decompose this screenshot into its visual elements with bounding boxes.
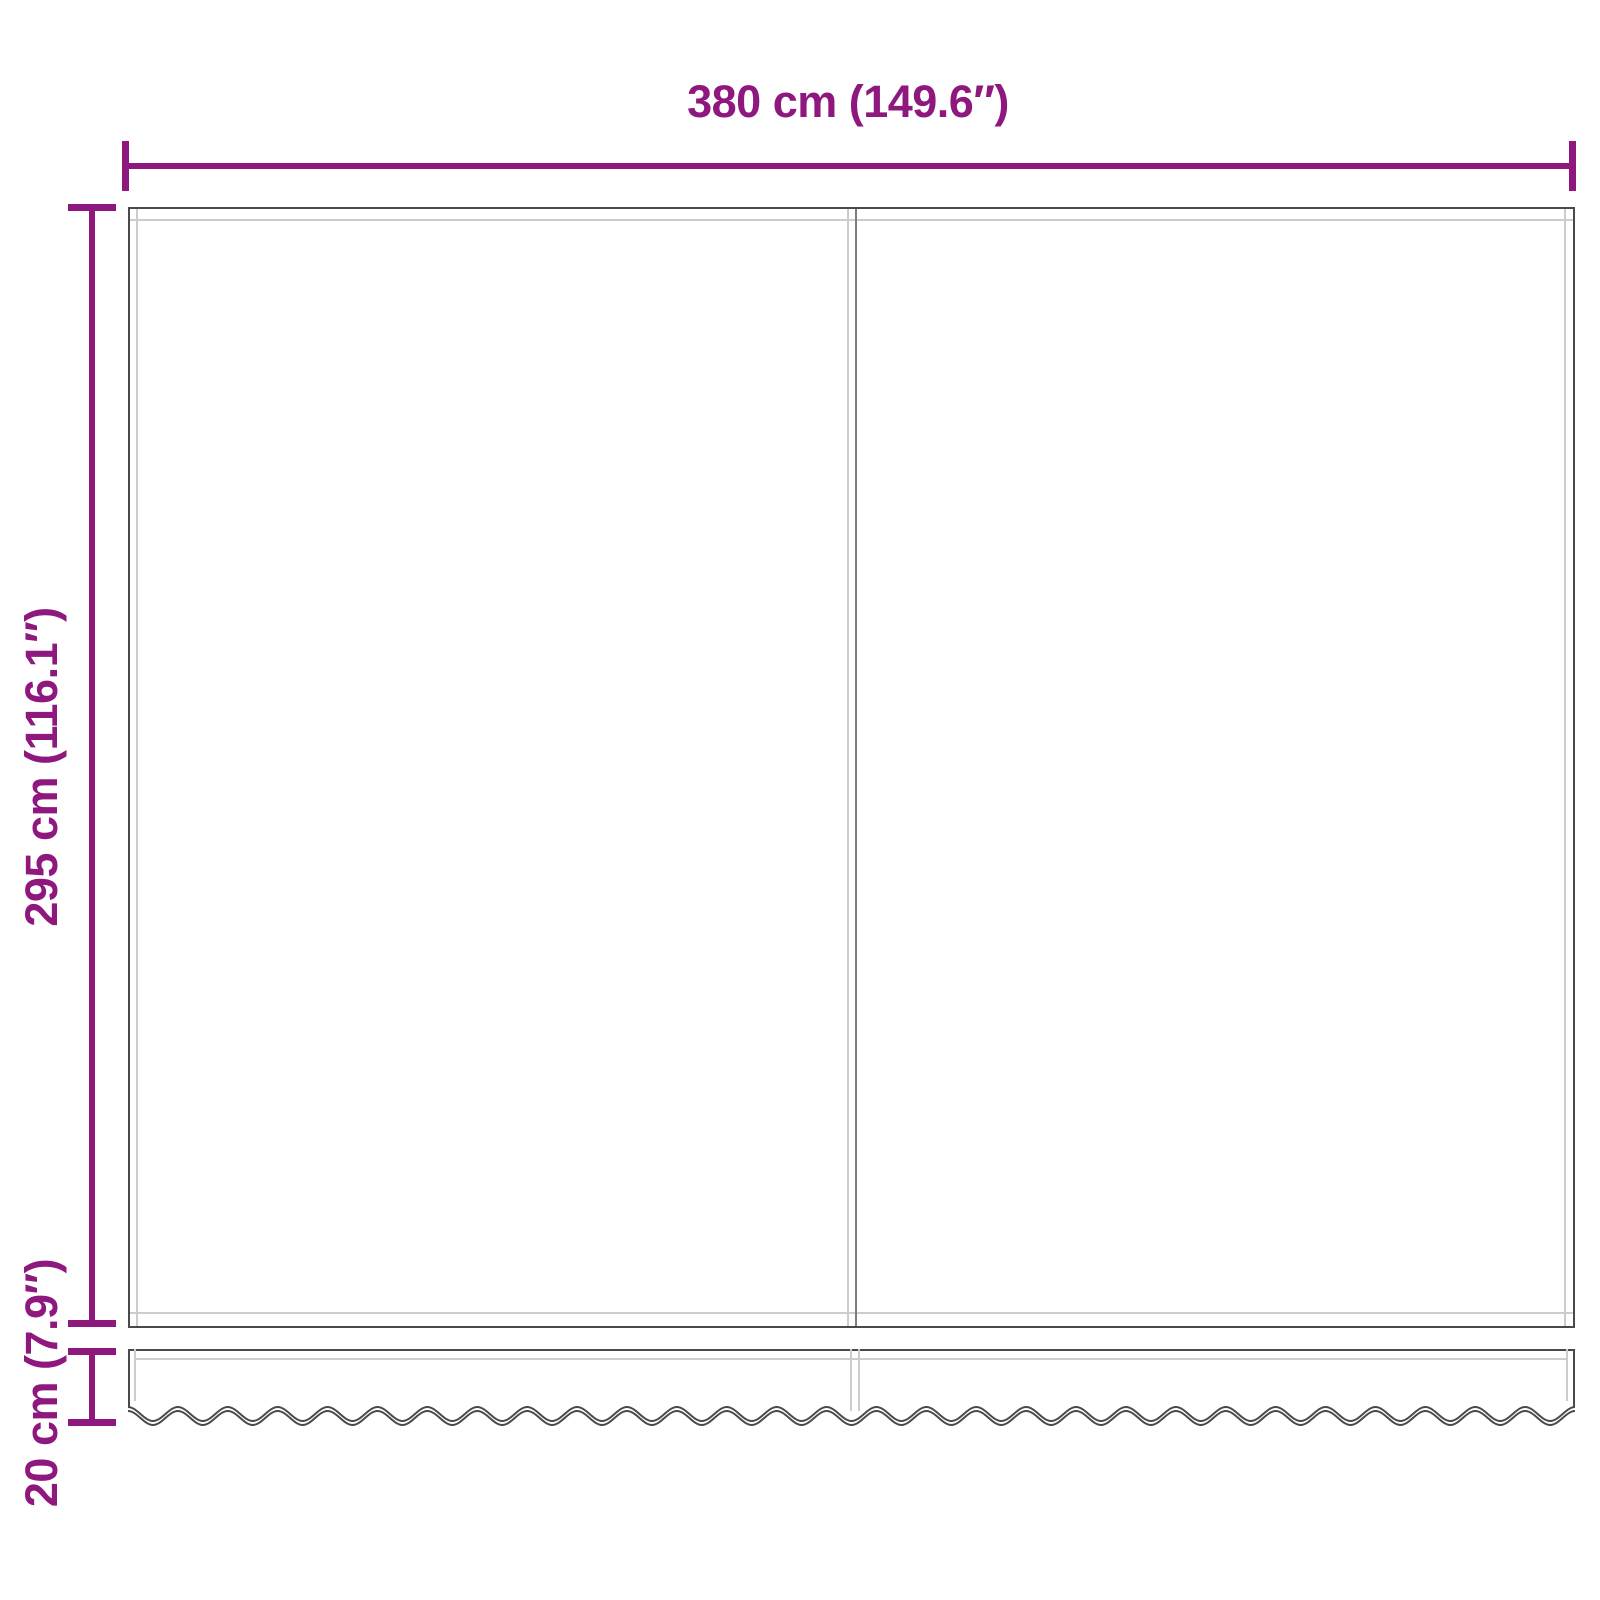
width-dimension-cap-left bbox=[122, 141, 129, 191]
height-dimension-label: 295 cm (116.1″) bbox=[16, 607, 68, 926]
valance-height-dimension-cap-bottom bbox=[68, 1419, 116, 1426]
width-dimension-cap-right bbox=[1569, 141, 1576, 191]
valance-hem-line-right bbox=[1566, 1349, 1568, 1401]
fabric-panel bbox=[128, 207, 1575, 1328]
panel-hem-line-left bbox=[136, 209, 138, 1326]
height-dimension-line bbox=[89, 207, 95, 1325]
panel-hem-line-right bbox=[1564, 209, 1566, 1326]
valance-hem-line-left bbox=[134, 1349, 136, 1401]
valance-edge-right bbox=[1573, 1349, 1575, 1408]
panel-hem-line-bottom bbox=[130, 1312, 1573, 1314]
scalloped-edge-outer-line bbox=[128, 1407, 1575, 1421]
valance-height-dimension-cap-top bbox=[68, 1348, 116, 1355]
width-dimension-line bbox=[126, 163, 1572, 169]
valance bbox=[128, 1349, 1575, 1429]
valance-center-seam-light-1 bbox=[850, 1349, 852, 1411]
panel-center-seam-light bbox=[847, 209, 849, 1326]
valance-height-dimension-line bbox=[89, 1351, 95, 1422]
valance-edge-left bbox=[128, 1349, 130, 1408]
valance-center-seam-light-2 bbox=[858, 1349, 860, 1411]
height-dimension-cap-top bbox=[68, 204, 116, 211]
valance-height-dimension-label: 20 cm (7.9″) bbox=[16, 1259, 68, 1507]
panel-hem-line-top bbox=[130, 219, 1573, 221]
height-dimension-cap-bottom bbox=[68, 1320, 116, 1327]
width-dimension-label: 380 cm (149.6″) bbox=[687, 76, 1009, 128]
awning-dimension-diagram: 380 cm (149.6″) 295 cm (116.1″) 20 cm (7… bbox=[0, 0, 1600, 1600]
panel-center-seam bbox=[855, 209, 857, 1326]
scalloped-edge bbox=[128, 1404, 1575, 1430]
